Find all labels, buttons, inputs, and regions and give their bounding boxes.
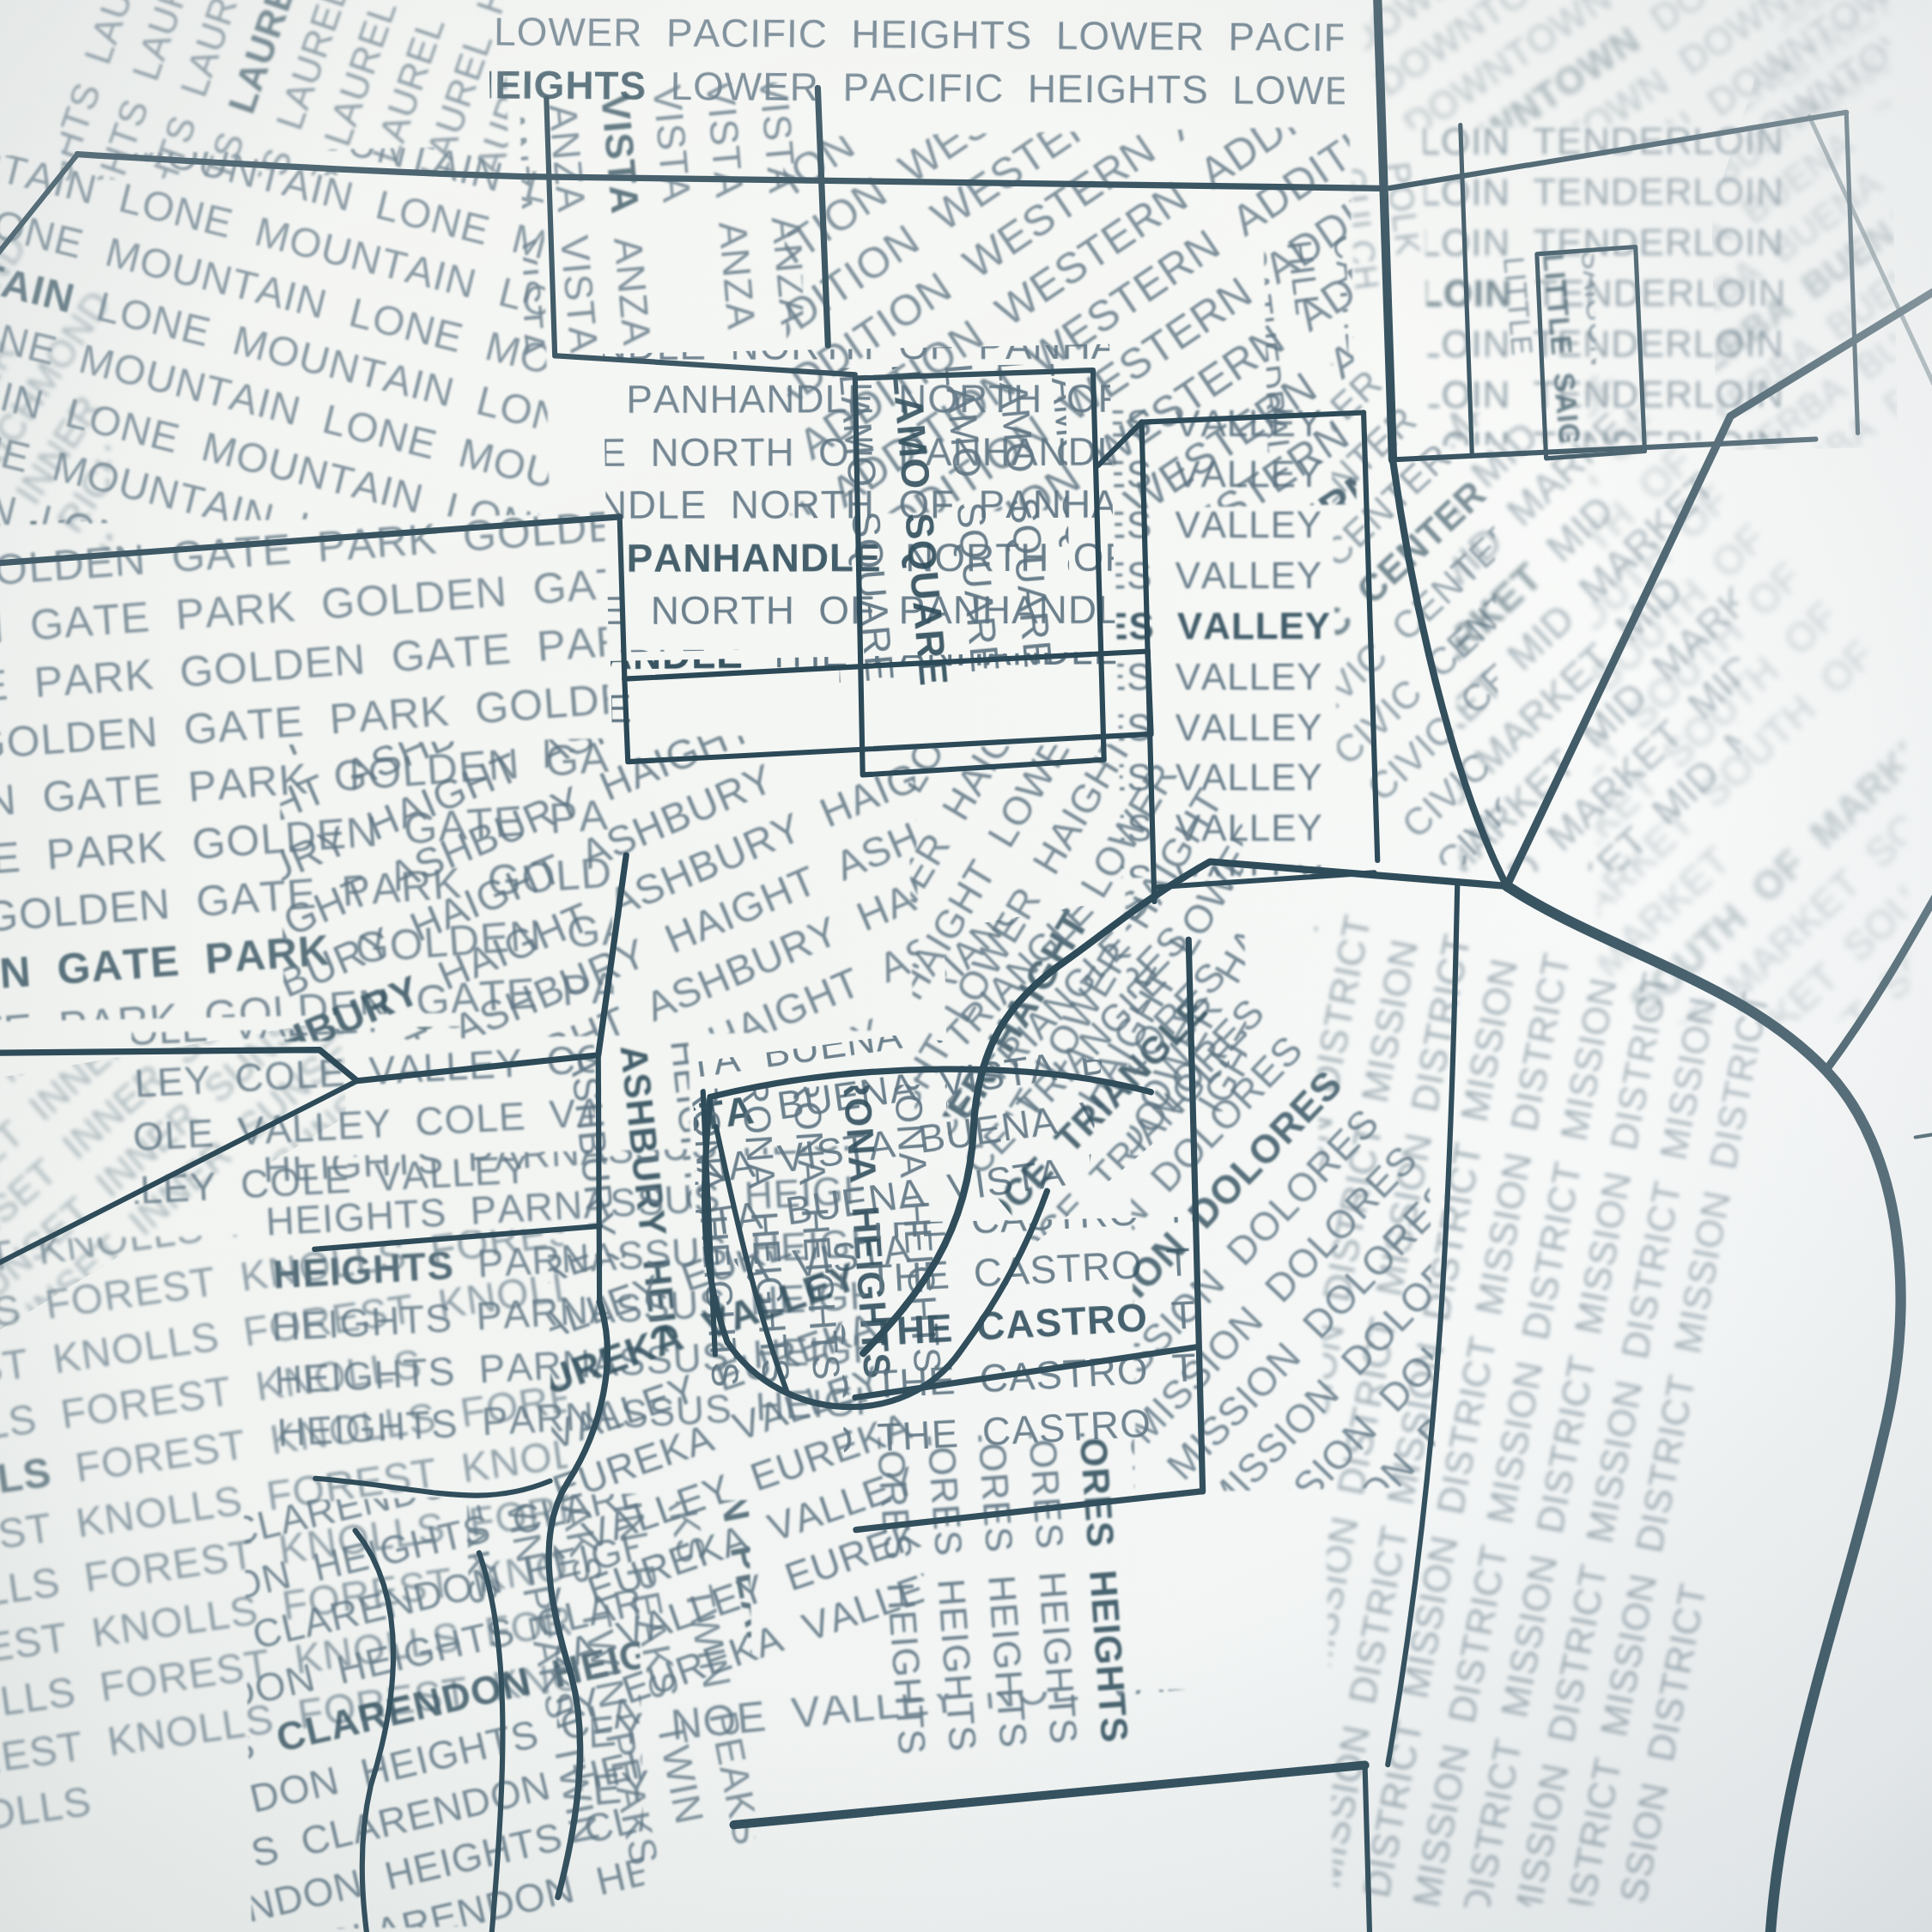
boundary-van-ness-south <box>1393 458 1507 888</box>
map-photo: INNER RICHMOND INNER RICHMOND INNER RICH… <box>0 0 1932 1932</box>
boundary-corona-left <box>716 1126 787 1391</box>
boundary-cole-parnassus <box>314 1226 600 1249</box>
boundary-tenderloin-top <box>1388 112 1847 188</box>
boundary-nopa-top <box>556 350 855 380</box>
boundary-hayes-left <box>1142 422 1155 902</box>
boundary-market-street <box>1495 274 1932 886</box>
boundary-twin-peaks-left <box>479 1552 507 1932</box>
boundary-inner-sunset-diagonal <box>0 1081 361 1277</box>
boundary-freeway-spur <box>1915 1129 1932 1137</box>
boundary-eureka-left <box>544 1302 617 1897</box>
boundary-ashbury-left <box>595 1055 604 1302</box>
boundary-tenderloin-right <box>1846 112 1857 434</box>
neighborhood-map: INNER RICHMOND INNER RICHMOND INNER RICH… <box>0 0 1932 1932</box>
boundary-nopa-left <box>620 517 625 679</box>
boundary-van-ness <box>1376 0 1393 459</box>
boundary-castro-top <box>854 1347 1199 1398</box>
boundary-freeway-branch <box>1822 854 1932 1070</box>
boundary-noe-top <box>733 1765 1366 1826</box>
boundary-hayes-top <box>1097 412 1364 465</box>
boundary-lines <box>0 0 1932 1932</box>
boundary-panhandle-box <box>624 651 1151 762</box>
boundary-hayes-right <box>1364 412 1377 860</box>
boundary-laurel-lph-bottom <box>77 130 1380 214</box>
boundary-mission-left <box>1365 1765 1371 1932</box>
boundary-dolores-mission-district <box>1371 885 1474 1765</box>
boundary-anza-right <box>817 88 828 345</box>
boundary-ggp-bottom <box>0 855 630 1088</box>
boundary-parnassus-bottom <box>315 1474 550 1499</box>
boundary-anza-left <box>546 99 555 356</box>
boundary-clarendon-left <box>355 1530 400 1932</box>
boundary-little-saigon-box <box>1537 246 1645 459</box>
boundary-buena-vista-park <box>702 1065 1157 1409</box>
boundary-tenderloin-bottom <box>1394 439 1816 459</box>
boundary-richmond-edge <box>0 155 80 289</box>
boundary-yerba-buena-diagonal <box>1809 114 1932 416</box>
boundary-market-sw <box>854 856 1515 1353</box>
boundary-castro-bottom <box>855 1492 1201 1530</box>
boundary-ggp-top <box>0 517 620 567</box>
boundary-castro-dolores <box>1188 939 1202 1492</box>
boundary-alamo-square-box <box>855 370 1104 775</box>
